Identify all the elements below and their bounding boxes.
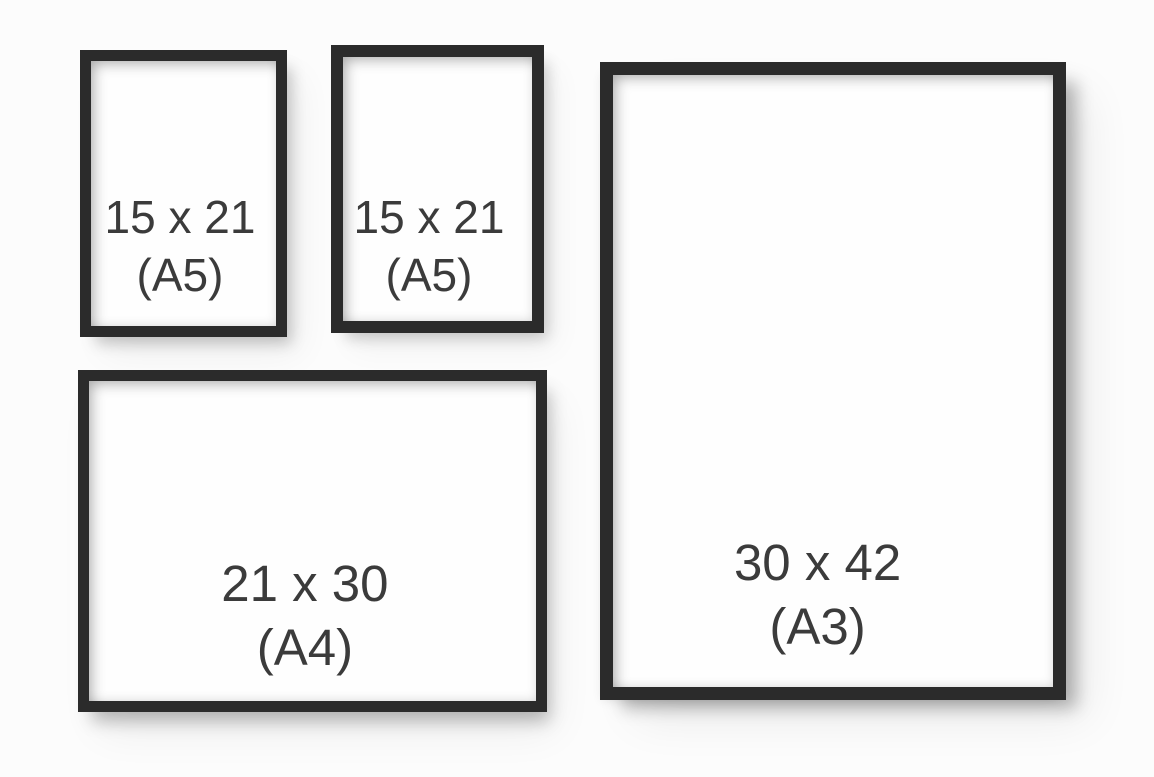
frame-size-label-a4-bottom-left: 21 x 30 (A4): [221, 552, 388, 681]
frame-paper-a5-top-left: 15 x 21 (A5): [91, 61, 276, 326]
frame-size-label-a3-right: 30 x 42 (A3): [734, 531, 901, 660]
poster-frame-size-chart: 15 x 21 (A5) 15 x 21 (A5) 30 x 42 (A3) 2…: [0, 0, 1154, 777]
picture-frame-a4-bottom-left: 21 x 30 (A4): [78, 370, 547, 712]
format-text: (A5): [105, 247, 256, 305]
dimensions-text: 30 x 42: [734, 531, 901, 595]
frame-size-label-a5-top-middle: 15 x 21 (A5): [354, 189, 505, 305]
picture-frame-a3-right: 30 x 42 (A3): [600, 62, 1066, 700]
format-text: (A3): [734, 595, 901, 659]
dimensions-text: 15 x 21: [105, 189, 256, 247]
frame-paper-a4-bottom-left: 21 x 30 (A4): [89, 381, 536, 701]
format-text: (A5): [354, 247, 505, 305]
frame-size-label-a5-top-left: 15 x 21 (A5): [105, 189, 256, 305]
picture-frame-a5-top-middle: 15 x 21 (A5): [331, 45, 544, 333]
frame-paper-a5-top-middle: 15 x 21 (A5): [343, 57, 532, 321]
dimensions-text: 21 x 30: [221, 552, 388, 616]
dimensions-text: 15 x 21: [354, 189, 505, 247]
frame-paper-a3-right: 30 x 42 (A3): [613, 75, 1053, 687]
format-text: (A4): [221, 616, 388, 680]
picture-frame-a5-top-left: 15 x 21 (A5): [80, 50, 287, 337]
